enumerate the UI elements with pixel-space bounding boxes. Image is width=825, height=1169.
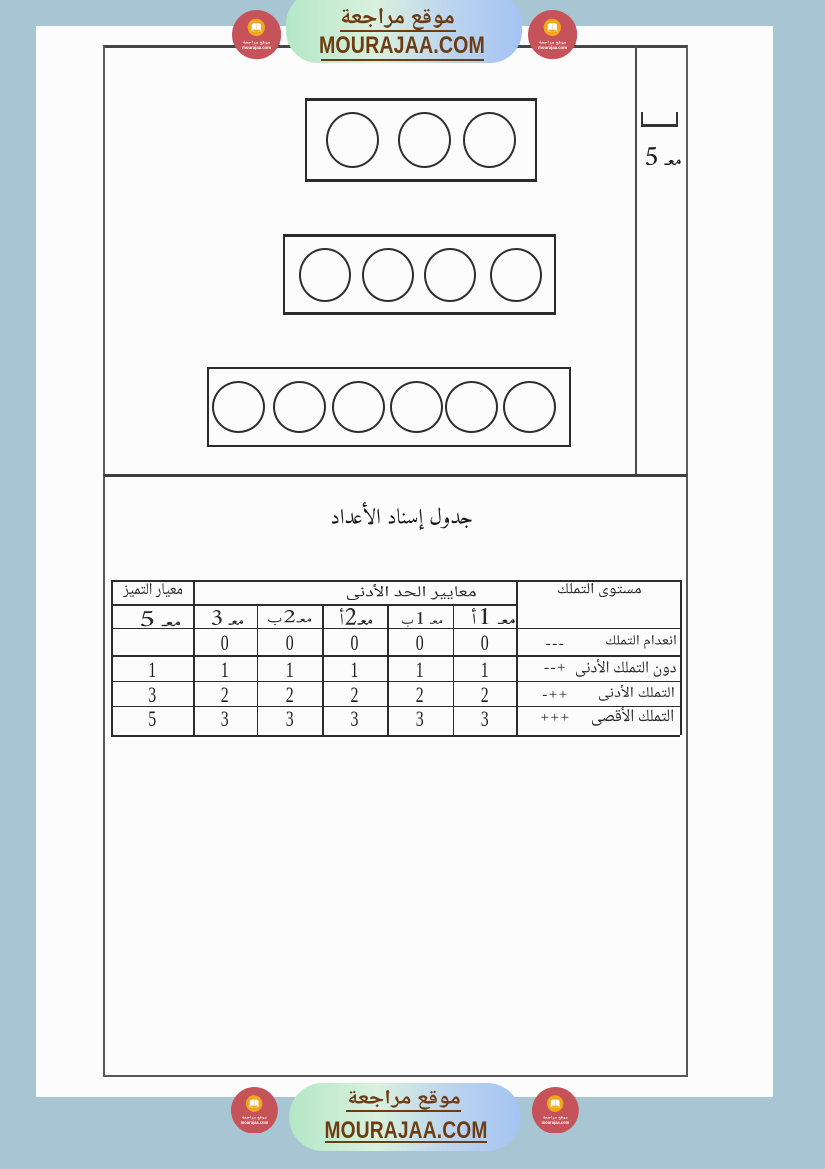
svg-text:mourajaa.com: mourajaa.com	[538, 45, 567, 50]
svg-text:mourajaa.com: mourajaa.com	[542, 1119, 570, 1124]
svg-text:mourajaa.com: mourajaa.com	[241, 1119, 269, 1124]
svg-text:mourajaa.com: mourajaa.com	[242, 45, 271, 50]
